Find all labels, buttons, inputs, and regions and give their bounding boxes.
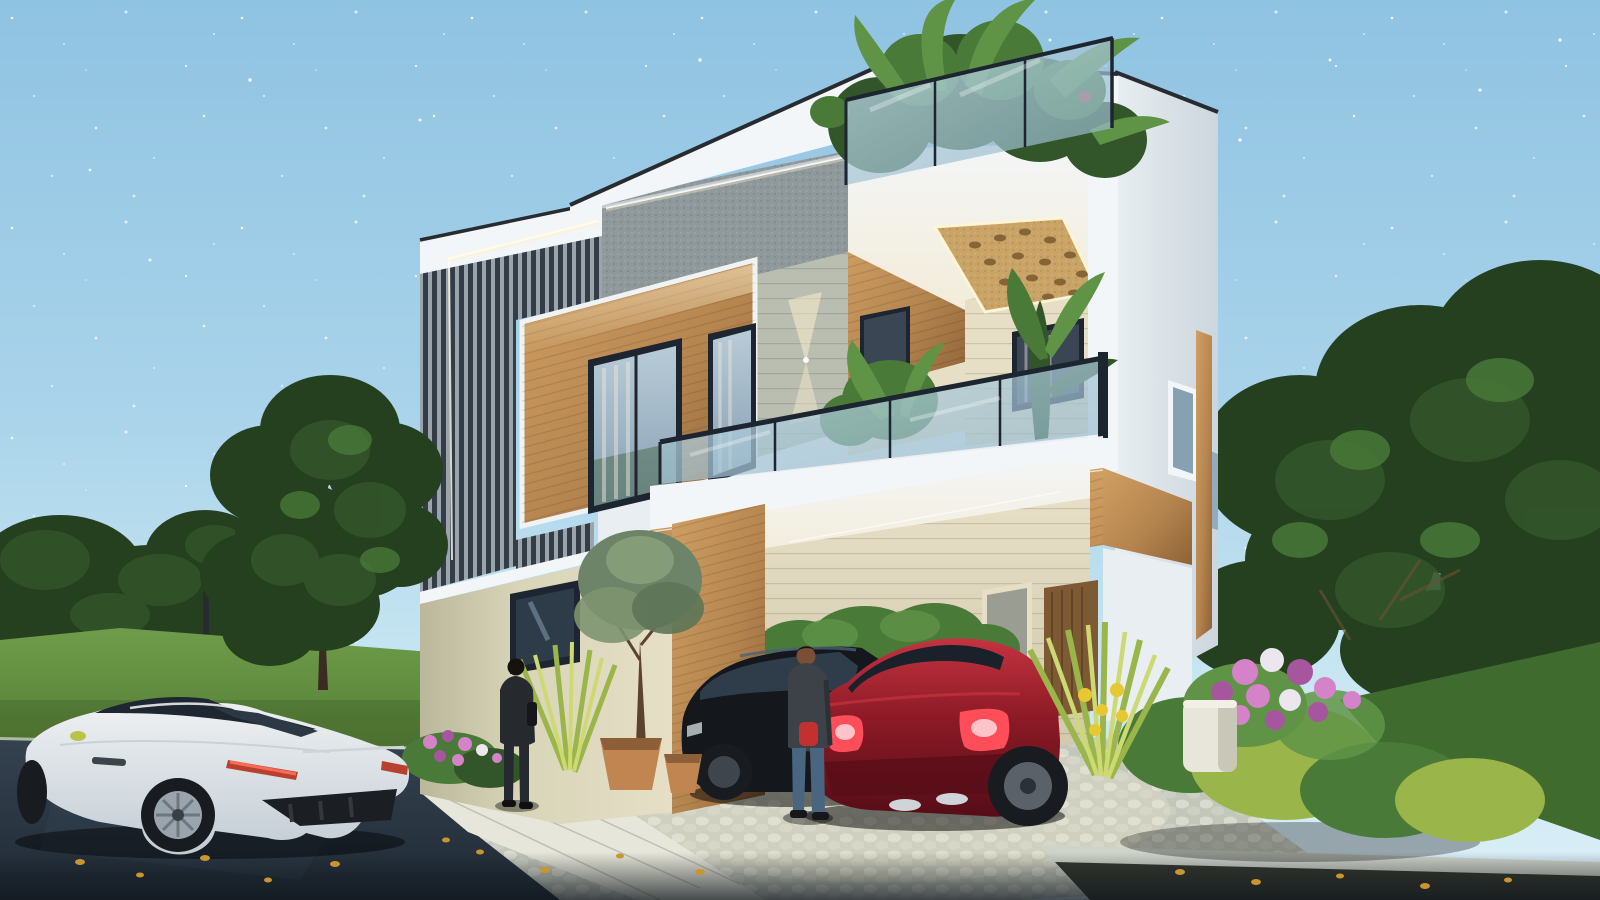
small-roof-plant [810,96,850,128]
person-a-leg-right [519,744,529,803]
gf-window [516,588,574,667]
exhaust-left [889,799,921,811]
person-b-leg-right [810,748,825,814]
person-b-leg-left [792,748,806,812]
corner-post [1098,352,1108,438]
black-coupe-wheel [708,756,740,788]
person-a-leg-left [504,744,514,802]
person-b-red-pouch [799,722,818,746]
white-car-front-wheel [17,760,47,824]
wood-corner-strip [1196,330,1212,640]
villa-rendering-stage [0,0,1600,900]
person-a-bag [527,702,537,726]
white-car-mirror [70,731,86,741]
person-a-head [508,659,525,676]
scene-3d-villa-rendering [0,0,1600,900]
exhaust-right [936,793,968,805]
gate-pillar [1183,700,1237,772]
wall-light-fixture [803,357,809,363]
right-window [1173,387,1193,474]
